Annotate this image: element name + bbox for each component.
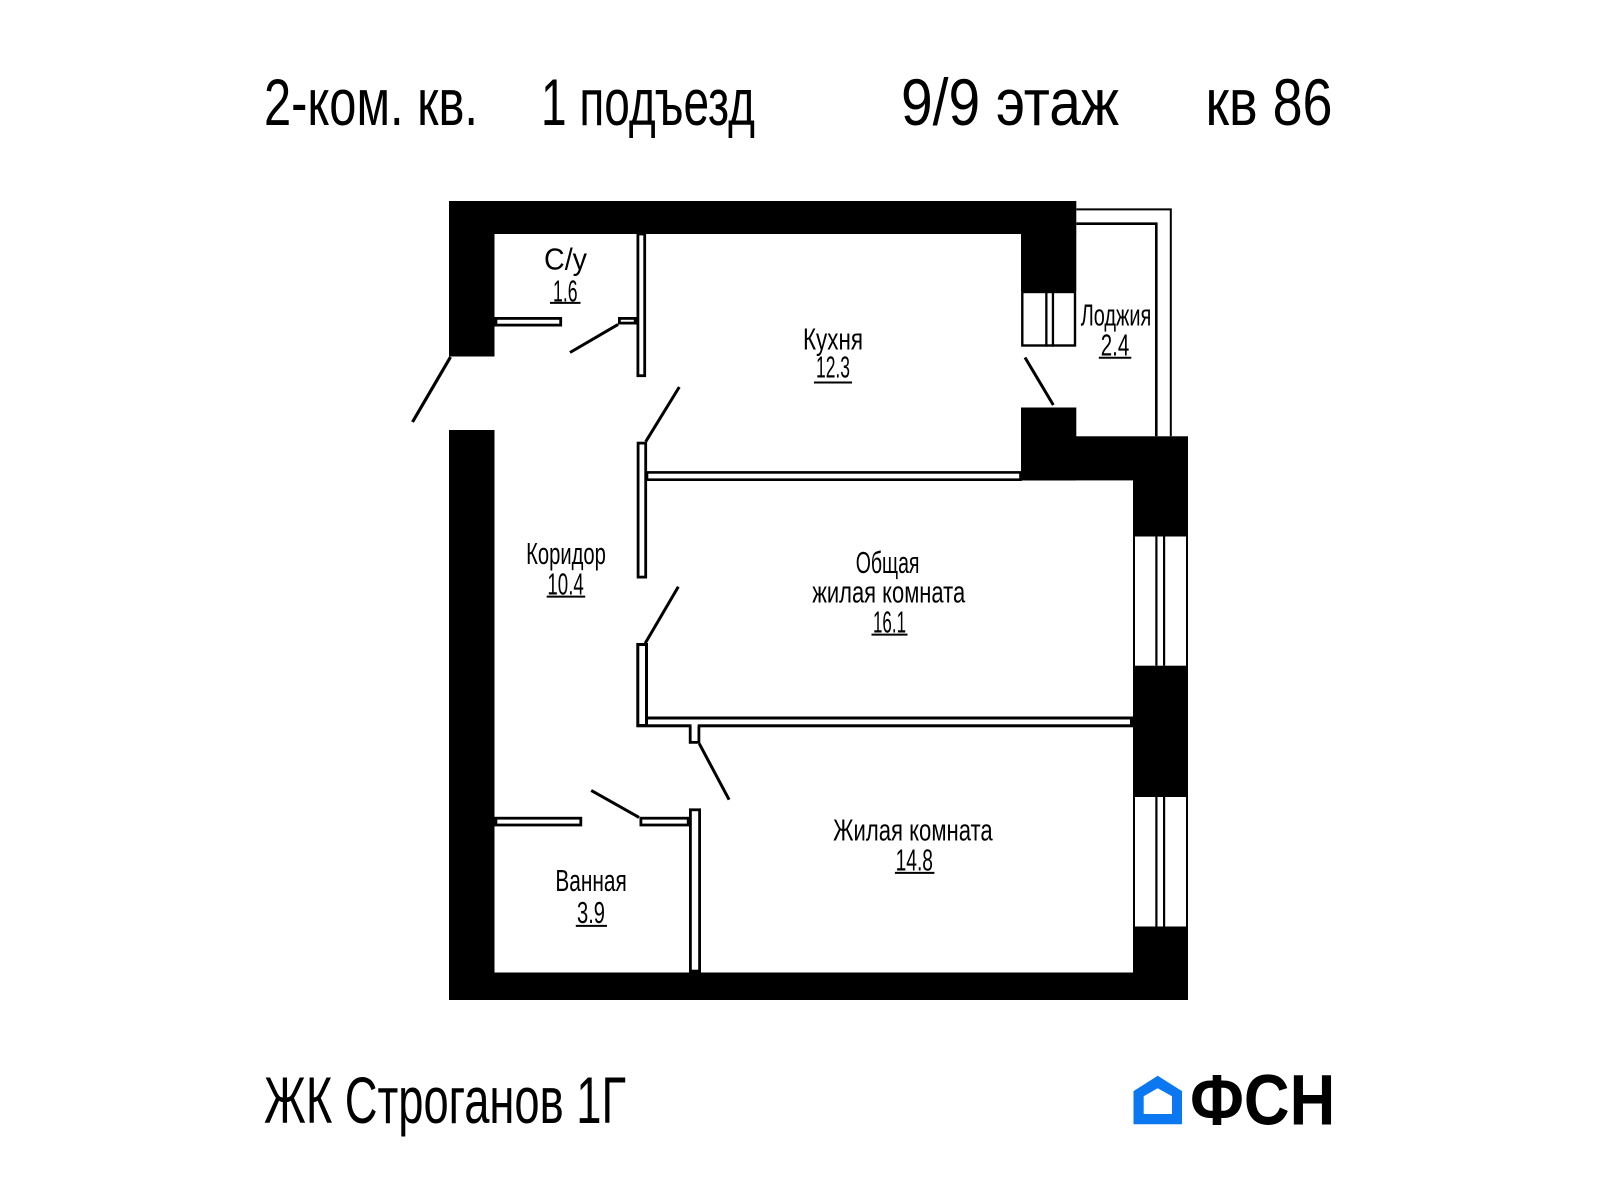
- svg-text:кв 86: кв 86: [1206, 66, 1333, 139]
- svg-text:1 подъезд: 1 подъезд: [541, 66, 755, 139]
- svg-text:ЖК Строганов 1Г: ЖК Строганов 1Г: [264, 1064, 626, 1137]
- svg-text:12.3: 12.3: [816, 350, 850, 385]
- svg-text:2-ком. кв.: 2-ком. кв.: [264, 66, 478, 139]
- svg-text:Ванная: Ванная: [555, 863, 626, 898]
- svg-text:9/9 этаж: 9/9 этаж: [901, 66, 1119, 139]
- svg-text:С/у: С/у: [544, 242, 587, 277]
- svg-text:ФСН: ФСН: [1190, 1062, 1335, 1141]
